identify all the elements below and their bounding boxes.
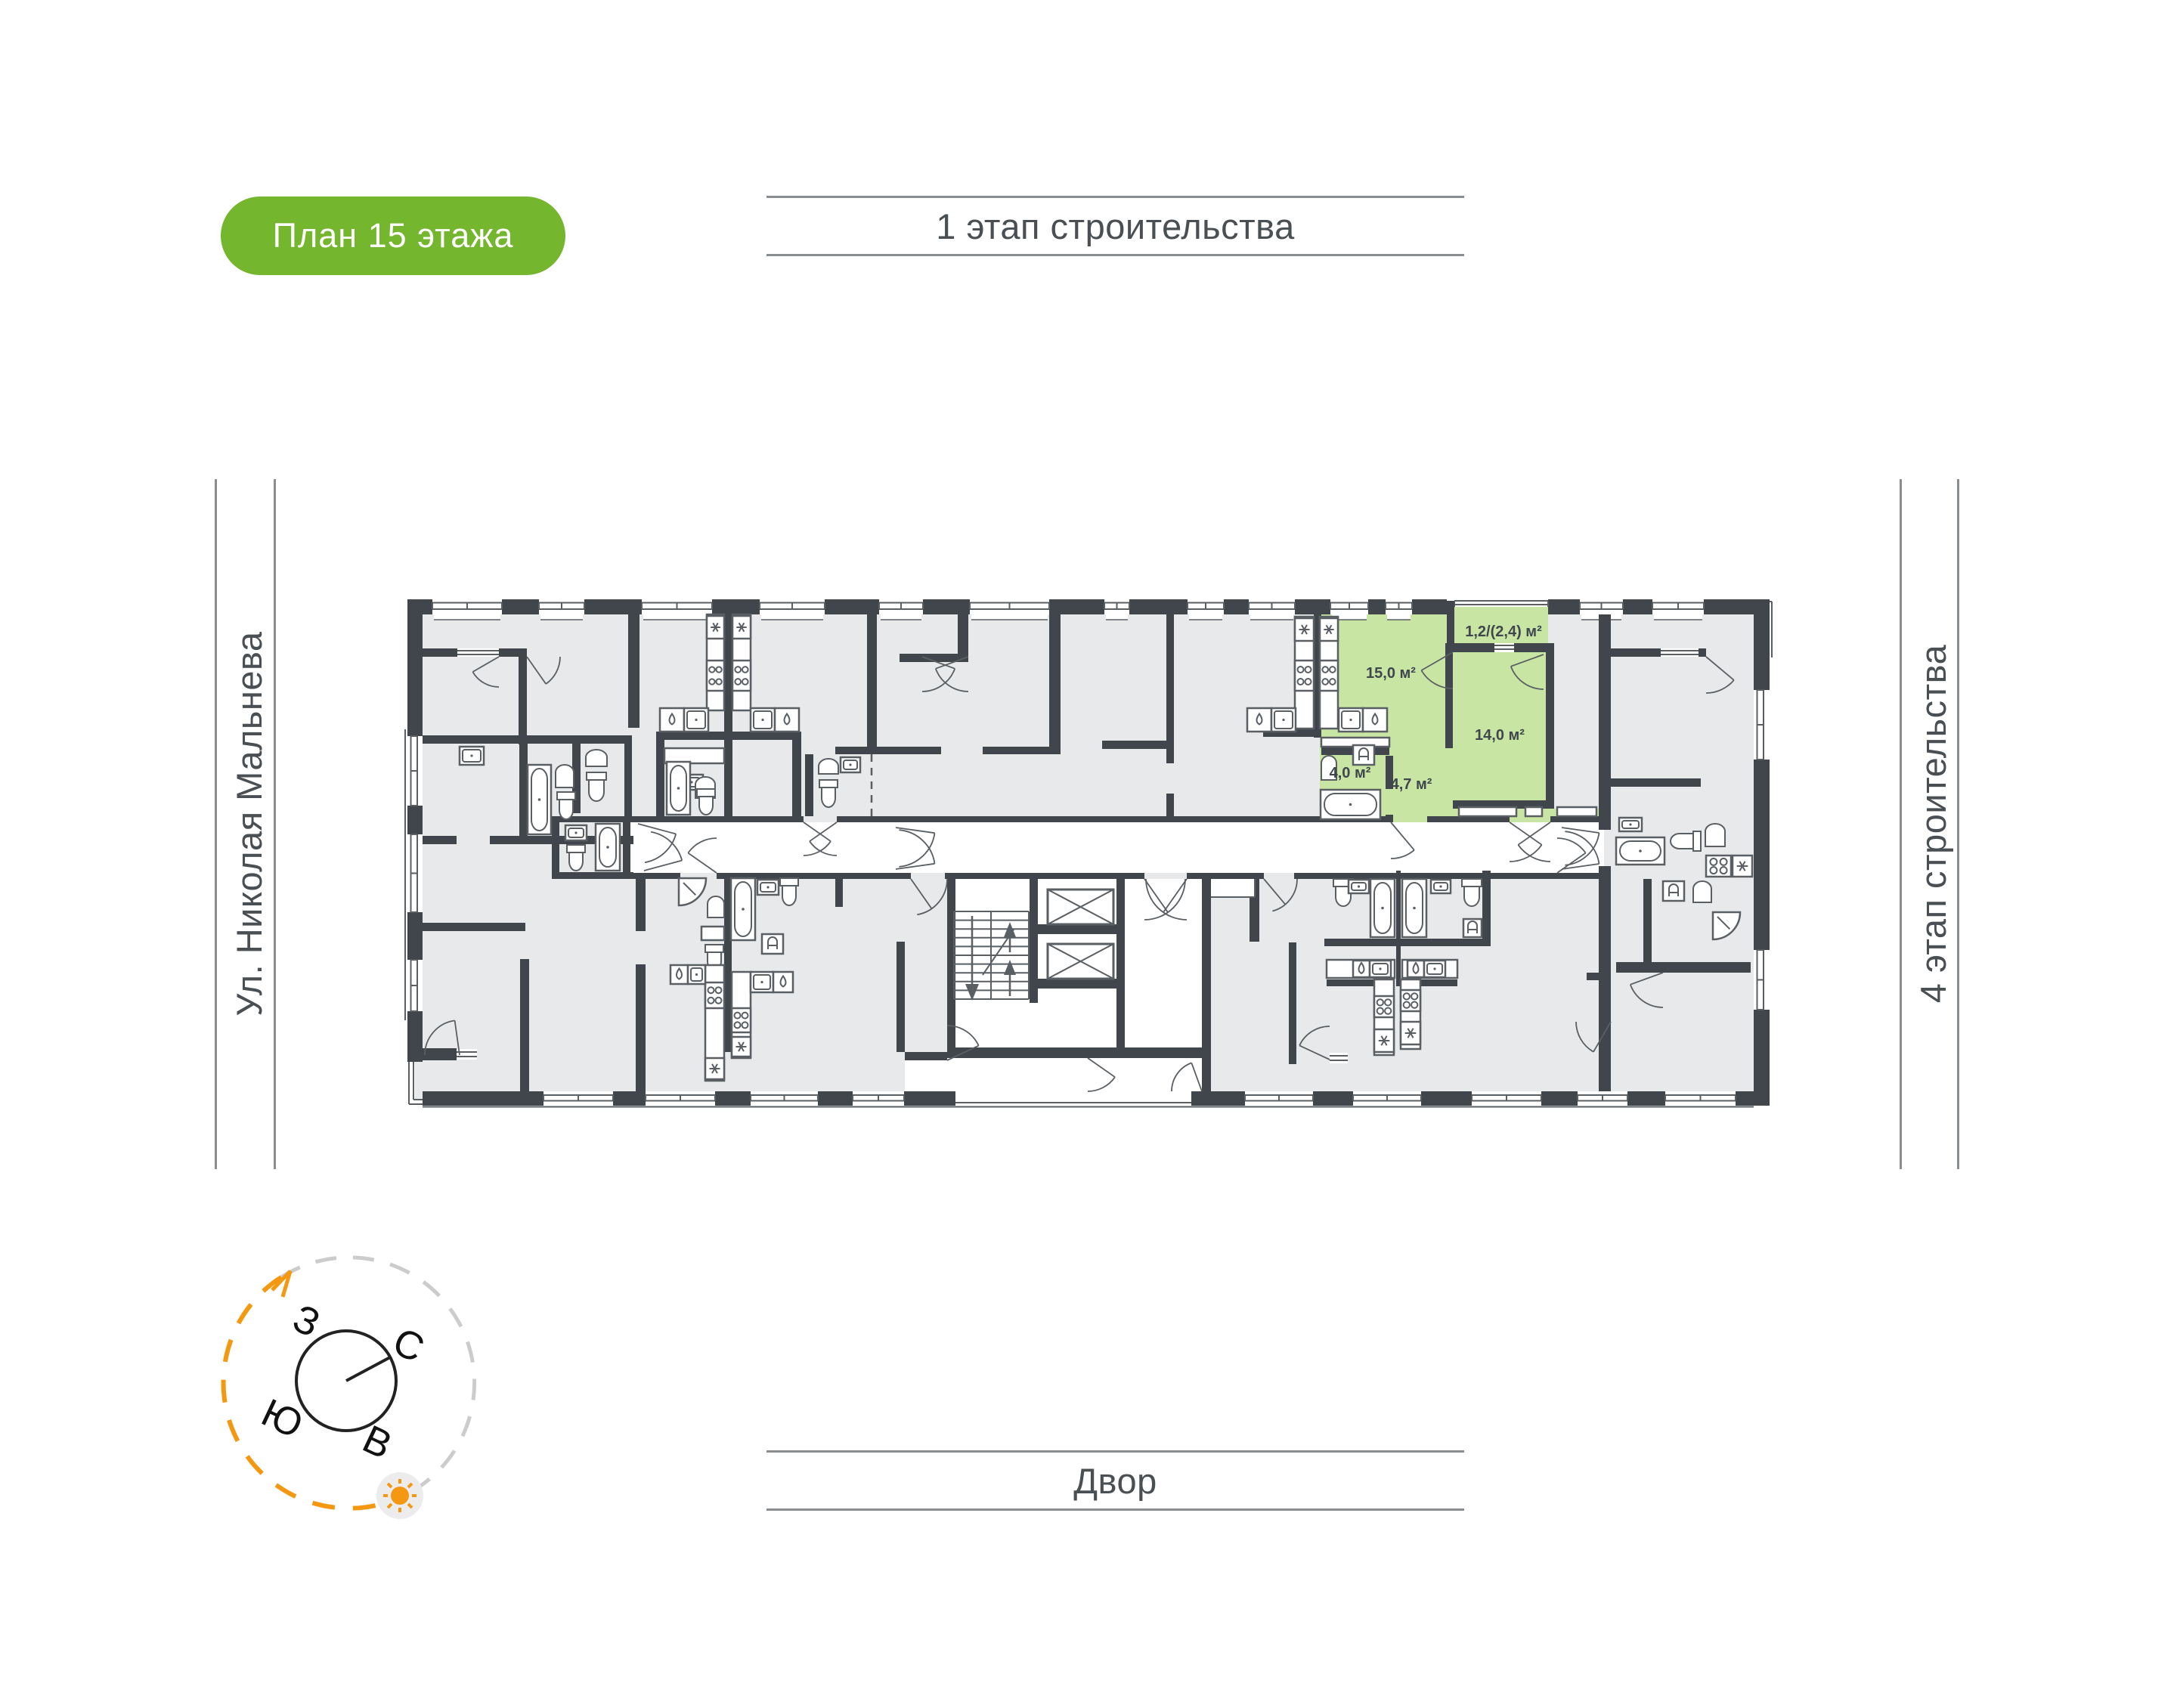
svg-text:4,0 м²: 4,0 м² [1330,765,1371,781]
svg-text:4,7 м²: 4,7 м² [1391,776,1432,793]
svg-text:1,2/(2,4) м²: 1,2/(2,4) м² [1465,623,1542,640]
svg-text:14,0 м²: 14,0 м² [1475,727,1525,744]
svg-text:15,0 м²: 15,0 м² [1366,665,1416,682]
